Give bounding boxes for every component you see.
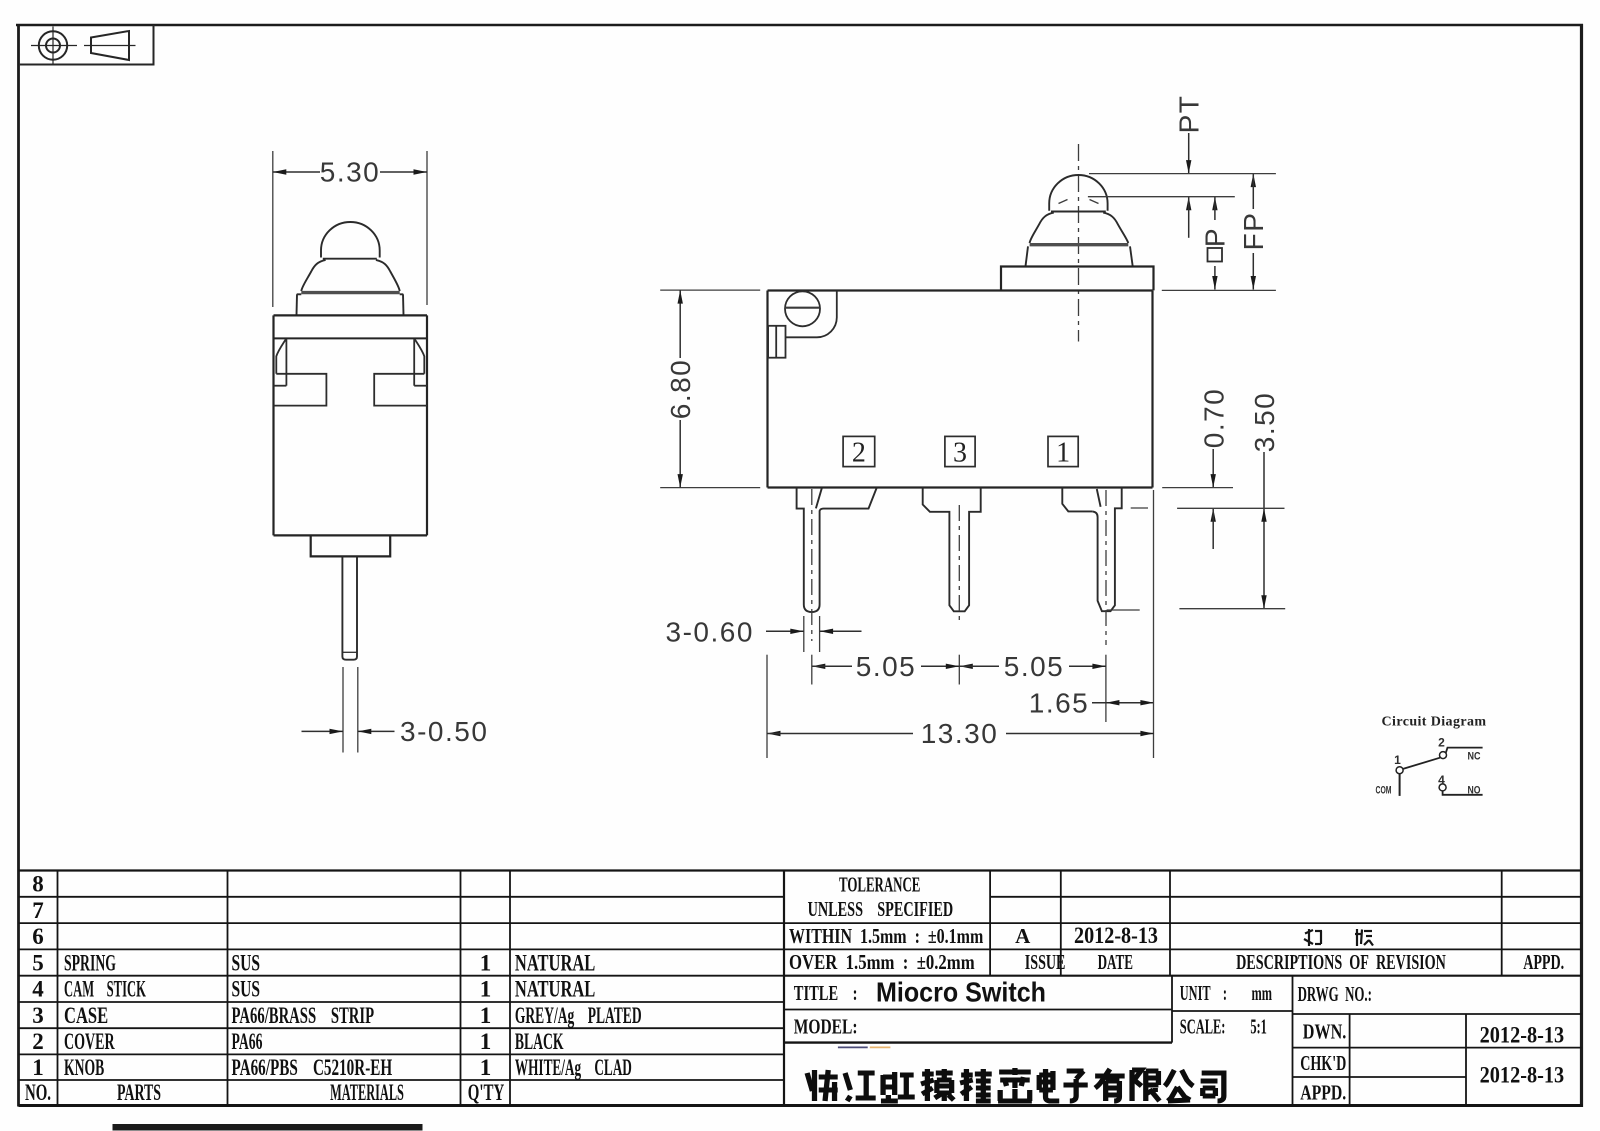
- svg-text:4: 4: [1438, 773, 1445, 787]
- svg-text:3: 3: [953, 438, 967, 469]
- svg-text:PT: PT: [1174, 95, 1205, 134]
- svg-text:13.30: 13.30: [921, 718, 999, 749]
- svg-text:NATURAL: NATURAL: [515, 977, 595, 1002]
- svg-text:1: 1: [1056, 438, 1070, 469]
- svg-text:NO: NO: [1468, 785, 1481, 797]
- svg-text:Circuit Diagram: Circuit Diagram: [1382, 715, 1487, 730]
- svg-text:OVER 1.5mm : ±0.2mm: OVER 1.5mm : ±0.2mm: [789, 952, 975, 975]
- svg-text:APPD.: APPD.: [1300, 1081, 1346, 1105]
- svg-text:WITHIN 1.5mm : ±0.1mm: WITHIN 1.5mm : ±0.1mm: [789, 925, 984, 949]
- svg-text:0.70: 0.70: [1199, 388, 1230, 449]
- svg-text:1: 1: [1394, 753, 1401, 767]
- svg-text:3-0.60: 3-0.60: [666, 617, 754, 648]
- svg-text:5.05: 5.05: [856, 651, 917, 682]
- svg-text:SUS: SUS: [232, 952, 261, 977]
- svg-text:1: 1: [32, 1055, 44, 1080]
- svg-text:KNOB: KNOB: [64, 1056, 104, 1082]
- svg-text:2: 2: [852, 438, 866, 469]
- svg-text:GREY/Ag PLATED: GREY/Ag PLATED: [515, 1003, 642, 1029]
- svg-text:SUS: SUS: [232, 978, 261, 1003]
- svg-text:SPRING: SPRING: [64, 951, 116, 976]
- svg-text:DWN.: DWN.: [1303, 1021, 1346, 1045]
- svg-text:4: 4: [32, 977, 44, 1002]
- svg-text:COM: COM: [1376, 785, 1392, 797]
- svg-text:PA66/BRASS STRIP: PA66/BRASS STRIP: [232, 1004, 375, 1029]
- svg-text:WHITE/Ag CLAD: WHITE/Ag CLAD: [515, 1055, 632, 1081]
- svg-text:1: 1: [480, 1029, 492, 1054]
- svg-text:CASE: CASE: [64, 1003, 108, 1028]
- svg-text:ISSUE: ISSUE: [1025, 950, 1066, 973]
- svg-text:A: A: [1015, 924, 1031, 948]
- svg-text:NATURAL: NATURAL: [515, 951, 595, 976]
- svg-text:P: P: [1200, 227, 1231, 247]
- svg-text:1: 1: [480, 950, 492, 975]
- svg-text:NO.: NO.: [25, 1081, 51, 1106]
- svg-text:COVER: COVER: [64, 1030, 115, 1055]
- svg-text:2012-8-13: 2012-8-13: [1074, 923, 1158, 949]
- svg-text:BLACK: BLACK: [515, 1030, 564, 1056]
- svg-text:1: 1: [480, 1003, 492, 1028]
- svg-text:3.50: 3.50: [1249, 392, 1280, 453]
- svg-text:MODEL:: MODEL:: [794, 1015, 858, 1038]
- svg-text:NC: NC: [1468, 751, 1481, 763]
- svg-text:PA66: PA66: [232, 1030, 263, 1056]
- svg-text:3: 3: [32, 1003, 44, 1028]
- svg-text:2: 2: [1438, 736, 1445, 750]
- svg-text:5: 5: [32, 950, 44, 975]
- svg-text:1.65: 1.65: [1029, 687, 1090, 718]
- svg-text:DRWG NO.:: DRWG NO.:: [1298, 982, 1372, 1006]
- svg-text:Miocro Switch: Miocro Switch: [876, 977, 1046, 1008]
- svg-text:UNLESS SPECIFIED: UNLESS SPECIFIED: [808, 897, 954, 920]
- svg-text:TOLERANCE: TOLERANCE: [839, 872, 920, 896]
- svg-text:8: 8: [32, 872, 44, 897]
- svg-text:2012-8-13: 2012-8-13: [1480, 1062, 1565, 1087]
- svg-text:5.30: 5.30: [320, 157, 381, 188]
- svg-text:6.80: 6.80: [665, 359, 696, 420]
- svg-text:DATE: DATE: [1098, 950, 1133, 974]
- svg-text:DESCRIPTIONS OF REVISION: DESCRIPTIONS OF REVISION: [1236, 950, 1446, 973]
- svg-text:PARTS: PARTS: [117, 1081, 161, 1106]
- svg-text:1: 1: [480, 1055, 492, 1080]
- svg-text:3-0.50: 3-0.50: [400, 716, 488, 747]
- svg-text:TITLE :: TITLE :: [794, 981, 858, 1004]
- svg-text:CAM STICK: CAM STICK: [64, 977, 146, 1003]
- svg-text:FP: FP: [1238, 212, 1269, 251]
- svg-text:APPD.: APPD.: [1523, 950, 1564, 973]
- svg-text:Q'TY: Q'TY: [468, 1081, 504, 1106]
- svg-text:PA66/PBS C5210R-EH: PA66/PBS C5210R-EH: [232, 1056, 393, 1081]
- svg-text:1: 1: [480, 977, 492, 1002]
- svg-text:2012-8-13: 2012-8-13: [1480, 1022, 1565, 1047]
- svg-text:2: 2: [32, 1029, 44, 1054]
- svg-text:5.05: 5.05: [1004, 651, 1065, 682]
- svg-text:MATERIALS: MATERIALS: [330, 1080, 404, 1105]
- svg-text:7: 7: [32, 898, 44, 923]
- svg-text:CHK'D: CHK'D: [1300, 1051, 1346, 1074]
- svg-text:6: 6: [32, 924, 44, 949]
- svg-text:SCALE: 5:1: SCALE: 5:1: [1180, 1015, 1267, 1038]
- svg-text:UNIT : mm: UNIT : mm: [1180, 982, 1273, 1005]
